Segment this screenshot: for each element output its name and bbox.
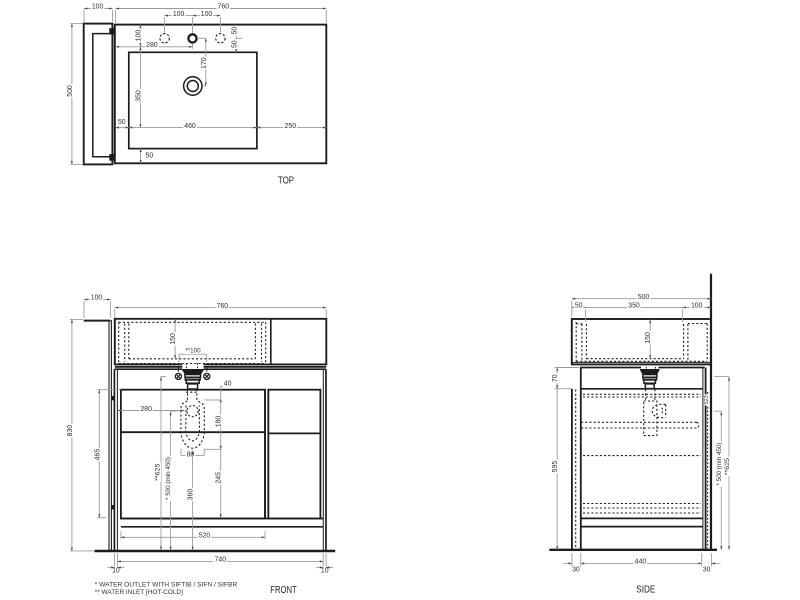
svg-text:80: 80 (187, 452, 195, 459)
svg-text:* 500 (min 450): * 500 (min 450) (165, 457, 172, 500)
svg-text:100: 100 (691, 303, 703, 310)
svg-text:70: 70 (552, 374, 559, 382)
svg-text:500: 500 (67, 85, 74, 97)
svg-text:**100: **100 (185, 348, 201, 355)
svg-text:350: 350 (135, 90, 142, 102)
svg-text:30: 30 (572, 567, 580, 574)
svg-text:**625: **625 (724, 458, 731, 476)
svg-text:595: 595 (552, 461, 559, 473)
svg-text:740: 740 (215, 557, 227, 564)
svg-text:** WATER INLET [HOT-COLD]: ** WATER INLET [HOT-COLD] (95, 589, 183, 596)
svg-text:10: 10 (112, 568, 120, 575)
svg-text:350: 350 (628, 303, 640, 310)
svg-text:**625: **625 (154, 463, 161, 481)
svg-text:465: 465 (94, 449, 101, 461)
svg-text:100: 100 (92, 4, 104, 11)
svg-text:250: 250 (285, 123, 297, 130)
svg-text:50: 50 (575, 303, 583, 310)
svg-text:760: 760 (217, 303, 229, 310)
svg-text:760: 760 (218, 4, 230, 11)
svg-text:150: 150 (170, 333, 177, 345)
svg-text:30: 30 (703, 567, 711, 574)
svg-text:50: 50 (118, 119, 126, 126)
svg-text:100: 100 (201, 11, 213, 18)
svg-text:50: 50 (146, 153, 154, 160)
svg-text:520: 520 (199, 533, 211, 540)
svg-text:* 500 (min 450): * 500 (min 450) (716, 443, 723, 486)
svg-text:280: 280 (140, 406, 152, 413)
svg-text:245: 245 (216, 472, 223, 484)
svg-text:460: 460 (184, 123, 196, 130)
svg-text:360: 360 (188, 489, 195, 501)
svg-text:500: 500 (638, 294, 650, 301)
svg-text:100: 100 (173, 11, 185, 18)
svg-text:150: 150 (645, 332, 652, 344)
svg-text:SIDE: SIDE (636, 584, 655, 595)
svg-text:TOP: TOP (278, 176, 295, 187)
svg-text:100: 100 (91, 295, 103, 302)
svg-text:830: 830 (67, 425, 74, 437)
svg-text:50: 50 (231, 27, 238, 35)
svg-text:170: 170 (201, 57, 208, 69)
svg-text:100: 100 (135, 30, 142, 42)
svg-text:FRONT: FRONT (270, 585, 297, 596)
svg-text:10: 10 (321, 568, 329, 575)
svg-text:50: 50 (231, 40, 238, 48)
svg-text:180: 180 (216, 416, 223, 428)
svg-text:* WATER OUTLET WITH SIFTIB /: * WATER OUTLET WITH SIFTIB / SIFN / SIFB… (95, 581, 238, 588)
svg-text:440: 440 (635, 559, 647, 566)
svg-text:280: 280 (146, 42, 158, 49)
svg-text:40: 40 (224, 380, 232, 387)
svg-text:523: 523 (704, 395, 710, 404)
